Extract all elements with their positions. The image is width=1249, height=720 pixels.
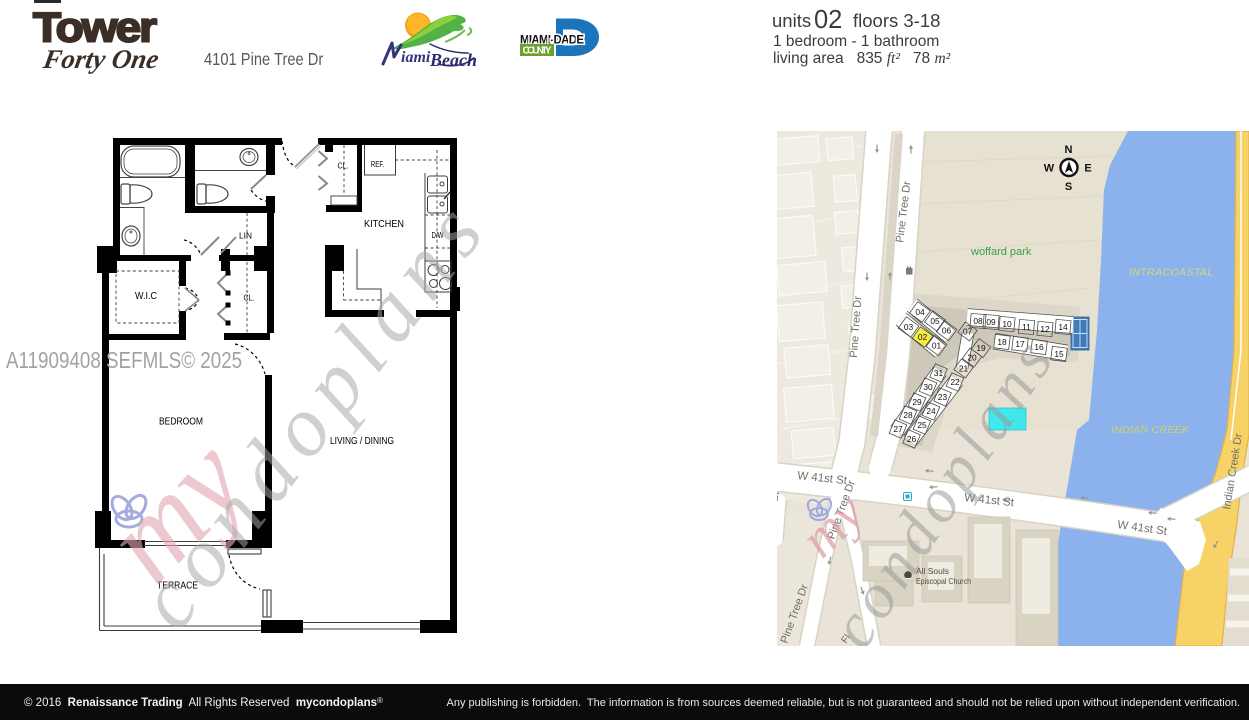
svg-text:05: 05 bbox=[930, 316, 940, 326]
svg-text:08: 08 bbox=[973, 316, 983, 326]
svg-text:31: 31 bbox=[934, 368, 944, 378]
svg-text:19: 19 bbox=[976, 343, 986, 353]
svg-text:24: 24 bbox=[926, 406, 936, 416]
svg-text:CL.: CL. bbox=[338, 161, 349, 171]
svg-text:W.I.C: W.I.C bbox=[135, 291, 157, 302]
svg-text:22: 22 bbox=[950, 377, 960, 387]
svg-text:REF.: REF. bbox=[371, 160, 385, 169]
svg-text:COUNTY: COUNTY bbox=[523, 46, 552, 57]
svg-text:06: 06 bbox=[942, 326, 952, 336]
svg-text:09: 09 bbox=[986, 317, 996, 327]
svg-text:INDIAN CREEK: INDIAN CREEK bbox=[1111, 424, 1190, 436]
svg-text:26: 26 bbox=[907, 434, 917, 444]
svg-text:LIN: LIN bbox=[239, 231, 252, 241]
svg-text:23: 23 bbox=[938, 392, 948, 402]
svg-text:woffard park: woffard park bbox=[970, 246, 1032, 258]
svg-text:02: 02 bbox=[918, 332, 928, 342]
svg-text:S: S bbox=[1065, 181, 1072, 193]
svg-text:28: 28 bbox=[903, 410, 913, 420]
svg-text:29: 29 bbox=[912, 397, 922, 407]
svg-text:E: E bbox=[1084, 163, 1091, 175]
svg-text:27: 27 bbox=[893, 424, 903, 434]
svg-text:03: 03 bbox=[904, 322, 914, 332]
svg-text:11: 11 bbox=[1022, 322, 1031, 332]
svg-text:21: 21 bbox=[959, 364, 969, 374]
svg-text:W: W bbox=[1044, 163, 1055, 175]
svg-text:25: 25 bbox=[917, 420, 927, 430]
svg-text:iami: iami bbox=[401, 49, 431, 66]
svg-text:30: 30 bbox=[923, 382, 933, 392]
svg-text:20: 20 bbox=[967, 353, 977, 363]
svg-text:Beach: Beach bbox=[429, 50, 477, 70]
svg-text:14: 14 bbox=[1058, 322, 1068, 332]
svg-text:INTRACOASTAL: INTRACOASTAL bbox=[1129, 267, 1214, 279]
svg-text:CL.: CL. bbox=[244, 293, 255, 303]
svg-text:12: 12 bbox=[1040, 324, 1050, 334]
svg-text:04: 04 bbox=[915, 307, 925, 317]
svg-text:07: 07 bbox=[963, 327, 973, 337]
svg-text:N: N bbox=[1065, 144, 1073, 156]
svg-text:01: 01 bbox=[932, 341, 942, 351]
